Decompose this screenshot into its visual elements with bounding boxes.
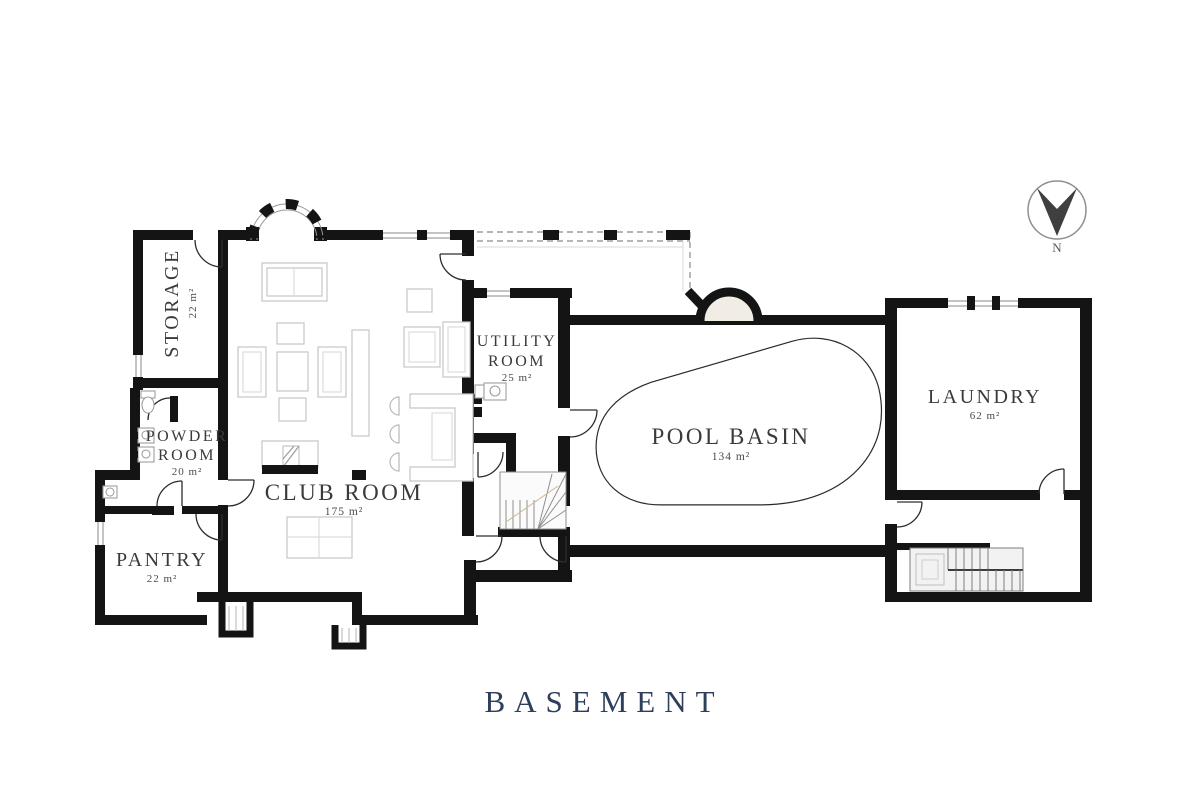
club-area: 175 m²	[325, 506, 364, 518]
north-arrow-icon	[1037, 188, 1077, 236]
pool-arch-niche	[700, 292, 758, 321]
window-wells	[222, 602, 363, 646]
bay-window	[251, 204, 323, 240]
sofa-set-right	[404, 289, 470, 377]
pool-area: 134 m²	[712, 451, 751, 463]
room-utility: UTILITY ROOM 25 m²	[477, 333, 558, 384]
utility-label-2: ROOM	[488, 353, 546, 370]
floor-plan-page: STORAGE 22 m² POWDER ROOM 20 m² PANTRY 2…	[0, 0, 1200, 800]
door-laundry	[1039, 469, 1064, 494]
door-club-corridor	[440, 254, 466, 280]
utility-label-1: UTILITY	[477, 333, 558, 350]
pool-label: POOL BASIN	[652, 424, 811, 449]
door-pool-upper	[570, 410, 597, 437]
billiard-table	[262, 263, 327, 301]
corridor-dashed-outline	[477, 230, 690, 291]
powder-area: 20 m²	[172, 466, 203, 478]
door-hall	[478, 452, 503, 477]
page-title: BASEMENT	[484, 684, 723, 719]
console-shelf	[352, 330, 369, 436]
winder-stairs	[500, 472, 566, 529]
room-powder: POWDER ROOM 20 m²	[146, 428, 229, 478]
room-pantry: PANTRY 22 m²	[116, 549, 208, 585]
powder-label-2: ROOM	[158, 447, 216, 464]
storage-area: 22 m²	[187, 288, 199, 319]
floor-plan-drawing: STORAGE 22 m² POWDER ROOM 20 m² PANTRY 2…	[0, 0, 1200, 800]
laundry-label: LAUNDRY	[928, 386, 1042, 408]
bar-counter	[390, 394, 482, 481]
compass-n-label: N	[1052, 240, 1062, 255]
sofa-set	[238, 323, 346, 421]
fireplace	[262, 441, 366, 480]
toilet	[141, 391, 155, 413]
door-powder-pantry	[157, 481, 182, 506]
laundry-area: 62 m²	[970, 410, 1001, 422]
room-laundry: LAUNDRY 62 m²	[928, 386, 1042, 422]
washing-machine	[475, 383, 506, 400]
room-storage: STORAGE 22 m²	[161, 248, 199, 357]
door-club-west	[228, 480, 254, 506]
utility-area: 25 m²	[502, 372, 533, 384]
powder-label-1: POWDER	[146, 428, 229, 445]
door-storage	[195, 240, 222, 267]
pantry-area: 22 m²	[147, 573, 178, 585]
room-club: CLUB ROOM 175 m²	[265, 480, 424, 518]
pantry-radiator	[152, 506, 174, 515]
game-table	[287, 517, 352, 558]
door-vestibule-club	[476, 536, 502, 562]
basement-stairs	[910, 548, 1023, 591]
pool-shape	[598, 340, 880, 503]
basin-on-wall	[103, 486, 117, 498]
pantry-label: PANTRY	[116, 549, 208, 571]
north-compass: N	[1028, 181, 1086, 255]
storage-label: STORAGE	[161, 248, 183, 357]
club-label: CLUB ROOM	[265, 480, 424, 505]
door-pool-hall	[897, 502, 922, 527]
